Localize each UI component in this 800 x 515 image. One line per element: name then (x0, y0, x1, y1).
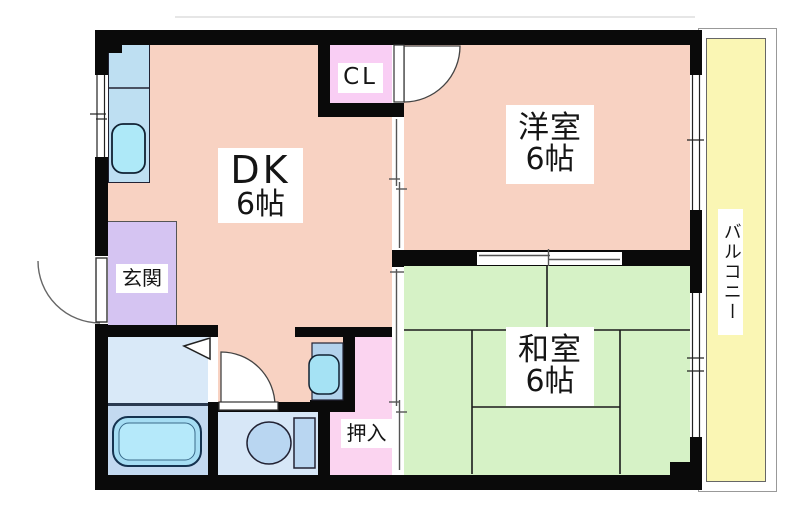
western-size: 6帖 (525, 145, 574, 176)
japanese-size: 6帖 (525, 367, 574, 398)
toilet-tank (294, 418, 315, 468)
japanese-name: 和室 (518, 335, 582, 367)
folding-door-icon (184, 338, 210, 359)
sliding-door-western-japanese-glyph (479, 249, 620, 266)
sliding-door-dk-western-glyph (389, 119, 407, 248)
toilet-icon (247, 422, 291, 464)
dk-size: 6帖 (236, 190, 285, 221)
window-western-glyph (687, 75, 704, 210)
entrance-door-leaf (96, 258, 107, 322)
label-balcony: バルコニー (718, 209, 743, 335)
label-entrance: 玄関 (116, 264, 168, 293)
label-western: 洋室 6帖 (506, 105, 594, 184)
dk-name: DK (230, 151, 290, 190)
window-japanese-glyph (687, 293, 704, 437)
window-kitchen-glyph (90, 75, 107, 157)
entrance-door-arc (38, 261, 100, 323)
washbasin-icon (309, 355, 339, 394)
label-dk: DK 6帖 (218, 148, 303, 223)
symbol-overlay (0, 0, 800, 515)
label-oshiire: 押入 (341, 419, 392, 448)
oshiire-name: 押入 (347, 423, 387, 443)
entrance-name: 玄関 (122, 268, 162, 288)
kitchen-sink-icon (112, 124, 145, 173)
closet-name: CL (343, 66, 378, 89)
western-room-door-leaf (394, 45, 404, 102)
floor-plan: DK 6帖 洋室 6帖 和室 6帖 CL 玄関 押入 バルコニー (0, 0, 800, 515)
bathtub-inner (119, 423, 195, 460)
label-japanese: 和室 6帖 (506, 327, 594, 406)
western-room-door-arc (404, 46, 460, 102)
label-closet: CL (338, 63, 383, 93)
balcony-name: バルコニー (721, 222, 739, 322)
toilet-door-arc (221, 352, 275, 406)
toilet-door-leaf (219, 402, 278, 410)
western-name: 洋室 (518, 113, 582, 145)
